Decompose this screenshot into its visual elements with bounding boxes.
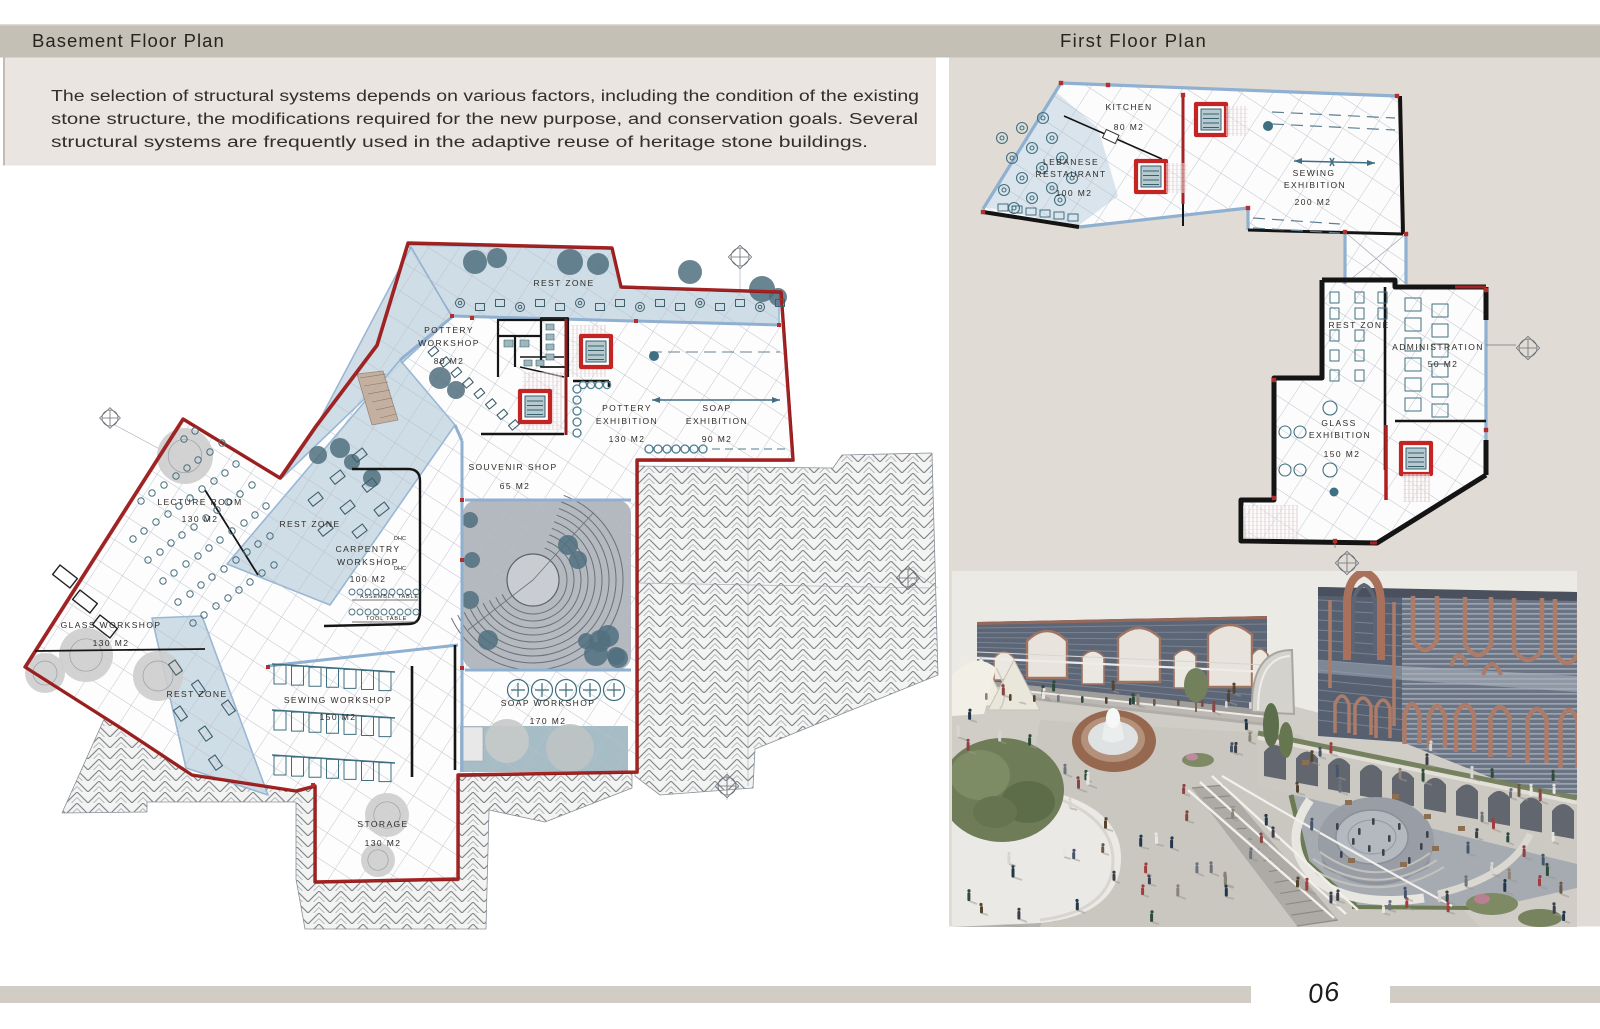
svg-text:REST ZONE: REST ZONE — [279, 519, 340, 529]
svg-text:DHC: DHC — [394, 536, 406, 542]
svg-text:stone structure, the modific: stone structure, the modifications requi… — [51, 111, 918, 128]
svg-text:POTTERY: POTTERY — [424, 325, 474, 335]
svg-text:WORKSHOP: WORKSHOP — [337, 557, 399, 567]
svg-text:SOAP: SOAP — [702, 403, 731, 413]
svg-text:50 M2: 50 M2 — [1428, 359, 1459, 369]
svg-text:100 M2: 100 M2 — [350, 574, 387, 584]
svg-text:RESTAURANT: RESTAURANT — [1036, 169, 1107, 179]
svg-text:GLASS WORKSHOP: GLASS WORKSHOP — [61, 620, 162, 630]
svg-text:REST ZONE: REST ZONE — [1328, 320, 1389, 330]
svg-text:LEBANESE: LEBANESE — [1043, 157, 1099, 167]
svg-text:STORAGE: STORAGE — [357, 819, 408, 829]
svg-text:ADMINISTRATION: ADMINISTRATION — [1392, 342, 1484, 352]
svg-text:KITCHEN: KITCHEN — [1105, 102, 1152, 112]
svg-text:Basement Floor Plan: Basement Floor Plan — [32, 30, 225, 51]
svg-text:TOOL TABLE: TOOL TABLE — [366, 616, 407, 622]
svg-text:170 M2: 170 M2 — [530, 716, 567, 726]
svg-text:90 M2: 90 M2 — [702, 434, 733, 444]
svg-text:100 M2: 100 M2 — [1056, 188, 1093, 198]
svg-text:EXHIBITION: EXHIBITION — [1309, 430, 1371, 440]
svg-text:LECTURE ROOM: LECTURE ROOM — [157, 497, 242, 507]
svg-text:DHC: DHC — [394, 566, 406, 572]
svg-text:EXHIBITION: EXHIBITION — [1284, 180, 1346, 190]
svg-text:REST ZONE: REST ZONE — [166, 689, 227, 699]
svg-text:EXHIBITION: EXHIBITION — [596, 416, 658, 426]
svg-text:SOAP WORKSHOP: SOAP WORKSHOP — [501, 698, 596, 708]
svg-text:REST ZONE: REST ZONE — [533, 278, 594, 288]
svg-text:130 M2: 130 M2 — [365, 838, 402, 848]
svg-text:130 M2: 130 M2 — [182, 514, 219, 524]
svg-text:65 M2: 65 M2 — [500, 481, 531, 491]
svg-text:130 M2: 130 M2 — [609, 434, 646, 444]
svg-text:200 M2: 200 M2 — [1295, 197, 1332, 207]
svg-text:SEWING WORKSHOP: SEWING WORKSHOP — [284, 695, 392, 705]
svg-text:EXHIBITION: EXHIBITION — [686, 416, 748, 426]
svg-text:SEWING: SEWING — [1293, 168, 1336, 178]
svg-text:SOUVENIR SHOP: SOUVENIR SHOP — [468, 462, 557, 472]
svg-text:The selection of structural sy: The selection of structural systems depe… — [51, 88, 919, 105]
svg-text:150 M2: 150 M2 — [320, 712, 357, 722]
svg-text:80 M2: 80 M2 — [434, 356, 465, 366]
svg-text:POTTERY: POTTERY — [602, 403, 652, 413]
svg-text:structural systems are freq: structural systems are frequently used i… — [51, 134, 868, 151]
svg-text:130 M2: 130 M2 — [93, 638, 130, 648]
svg-text:CARPENTRY: CARPENTRY — [336, 544, 401, 554]
svg-text:150 M2: 150 M2 — [1324, 449, 1361, 459]
svg-text:GLASS: GLASS — [1321, 418, 1356, 428]
svg-text:06: 06 — [1307, 976, 1342, 1009]
svg-text:First Floor Plan: First Floor Plan — [1060, 30, 1207, 51]
svg-text:80 M2: 80 M2 — [1114, 122, 1145, 132]
svg-text:WORKSHOP: WORKSHOP — [418, 338, 480, 348]
